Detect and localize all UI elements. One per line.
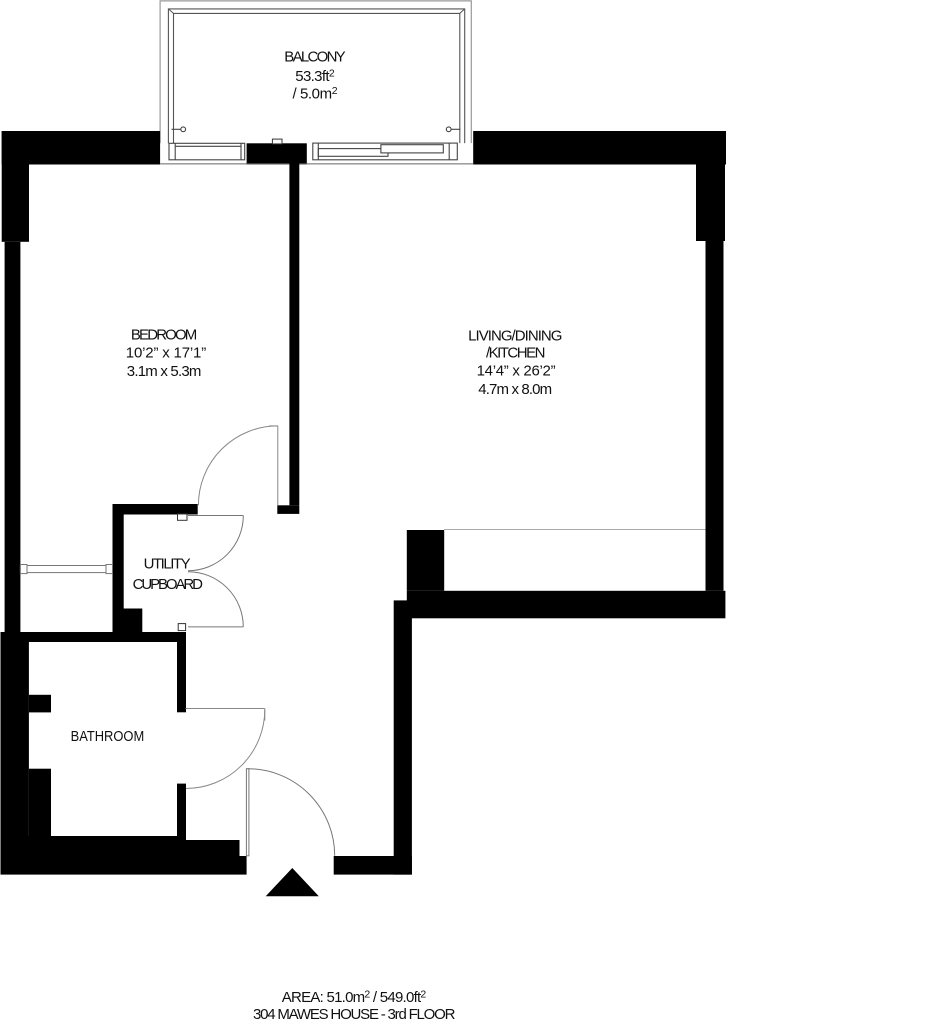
svg-text:/ 5.0m2: / 5.0m2 (292, 85, 337, 103)
svg-text:BATHROOM: BATHROOM (71, 728, 145, 745)
svg-text:AREA: 51.0m2 / 549.0ft2: AREA: 51.0m2 / 549.0ft2 (282, 989, 427, 1007)
svg-text:CUPBOARD: CUPBOARD (133, 576, 204, 593)
svg-text:BALCONY: BALCONY (284, 49, 345, 66)
svg-text:14’4” x 26’2”: 14’4” x 26’2” (477, 362, 556, 379)
svg-text:4.7m x 8.0m: 4.7m x 8.0m (478, 381, 552, 398)
svg-text:10’2” x 17’1”: 10’2” x 17’1” (126, 344, 206, 361)
svg-text:53.3ft2: 53.3ft2 (295, 68, 335, 86)
svg-text:UTILITY: UTILITY (144, 555, 191, 572)
svg-text:3.1m x 5.3m: 3.1m x 5.3m (127, 363, 202, 380)
svg-text:BEDROOM: BEDROOM (131, 327, 197, 344)
svg-text:LIVING/DINING: LIVING/DINING (468, 328, 562, 345)
svg-text:/KITCHEN: /KITCHEN (486, 345, 546, 362)
svg-text:304 MAWES HOUSE - 3rd FLOOR: 304 MAWES HOUSE - 3rd FLOOR (253, 1006, 456, 1023)
